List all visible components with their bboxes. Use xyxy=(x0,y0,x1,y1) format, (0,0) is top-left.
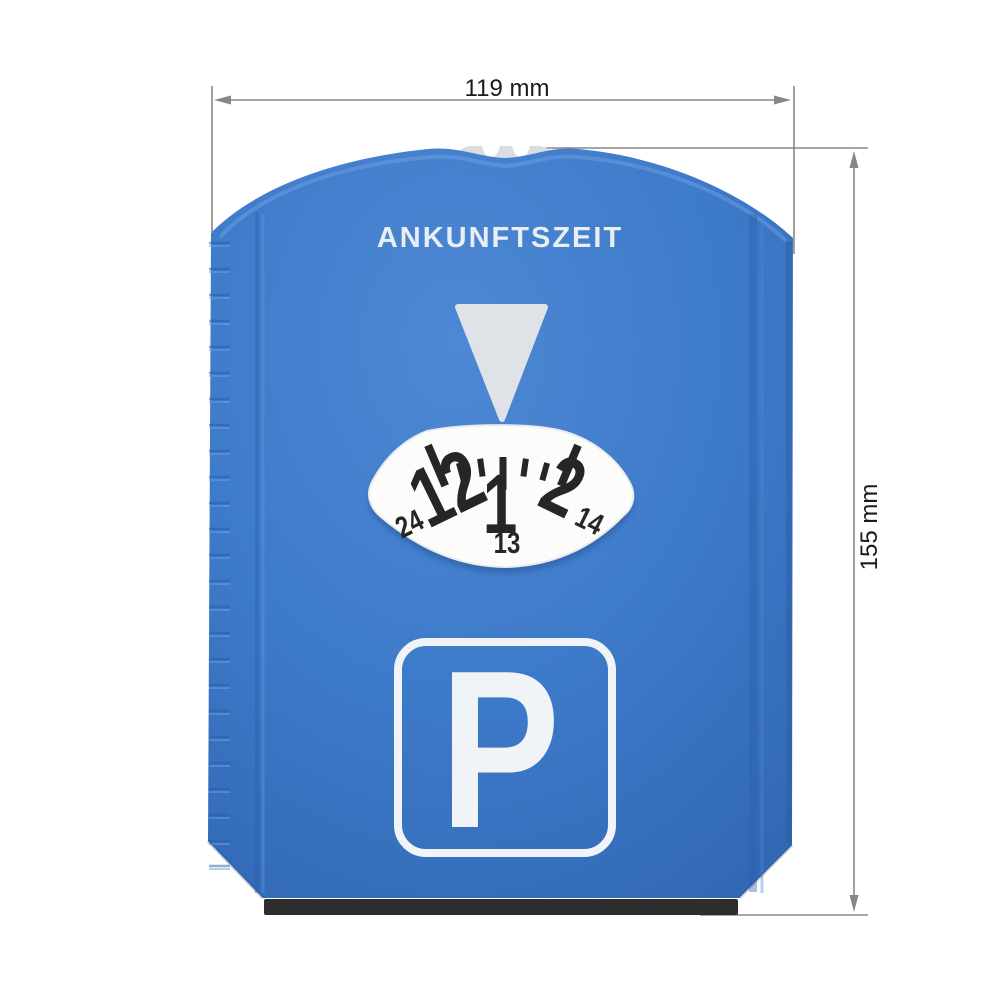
parking-sign-letter: P xyxy=(440,625,560,876)
dial-sub-numeral: 13 xyxy=(494,525,521,559)
arrow-right-icon xyxy=(774,96,791,105)
arrow-left-icon xyxy=(214,96,231,105)
product-image: ANKUNFTSZEIT 12 1 2 24 13 14 P xyxy=(0,0,1000,1000)
width-dimension-label: 119 mm xyxy=(465,75,550,102)
parking-disc: ANKUNFTSZEIT 12 1 2 24 13 14 P xyxy=(208,148,793,915)
arrow-down-icon xyxy=(850,895,859,912)
width-dimension: 119 mm xyxy=(214,75,791,105)
height-dimension: 155 mm xyxy=(850,151,884,912)
rubber-squeegee-lip xyxy=(264,899,738,915)
arrow-up-icon xyxy=(850,151,859,168)
arrival-time-label: ANKUNFTSZEIT xyxy=(377,222,623,254)
height-dimension-label: 155 mm xyxy=(856,484,883,571)
